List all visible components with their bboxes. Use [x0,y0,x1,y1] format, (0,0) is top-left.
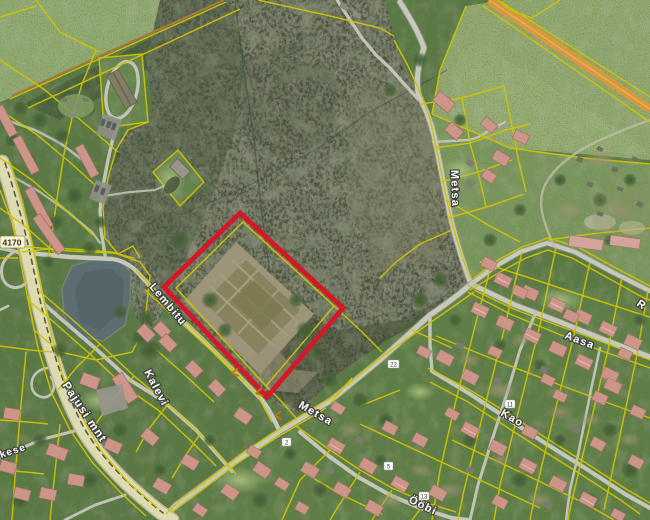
svg-text:22: 22 [390,363,397,369]
svg-text:4170: 4170 [3,238,22,248]
svg-text:13: 13 [421,495,428,501]
svg-text:11: 11 [507,403,514,409]
svg-text:Metsa: Metsa [448,170,461,208]
